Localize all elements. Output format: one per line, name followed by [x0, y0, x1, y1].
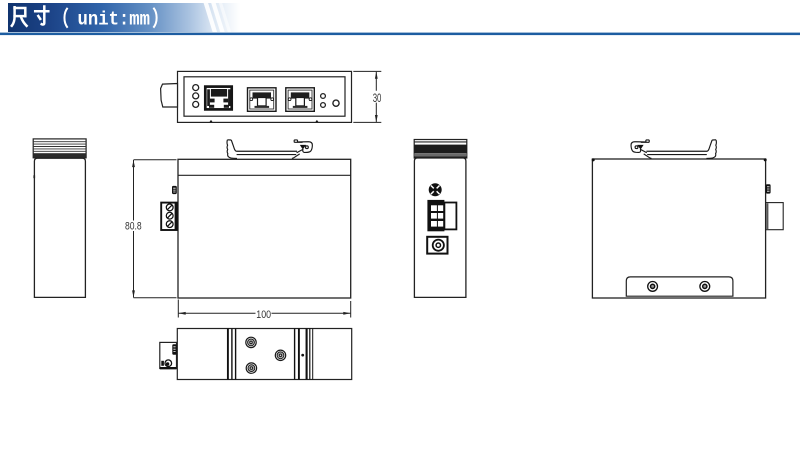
svg-text:unit:mm: unit:mm	[78, 9, 151, 31]
svg-text:100: 100	[256, 309, 271, 321]
svg-text:30: 30	[373, 92, 382, 105]
svg-text:80.8: 80.8	[125, 221, 142, 233]
